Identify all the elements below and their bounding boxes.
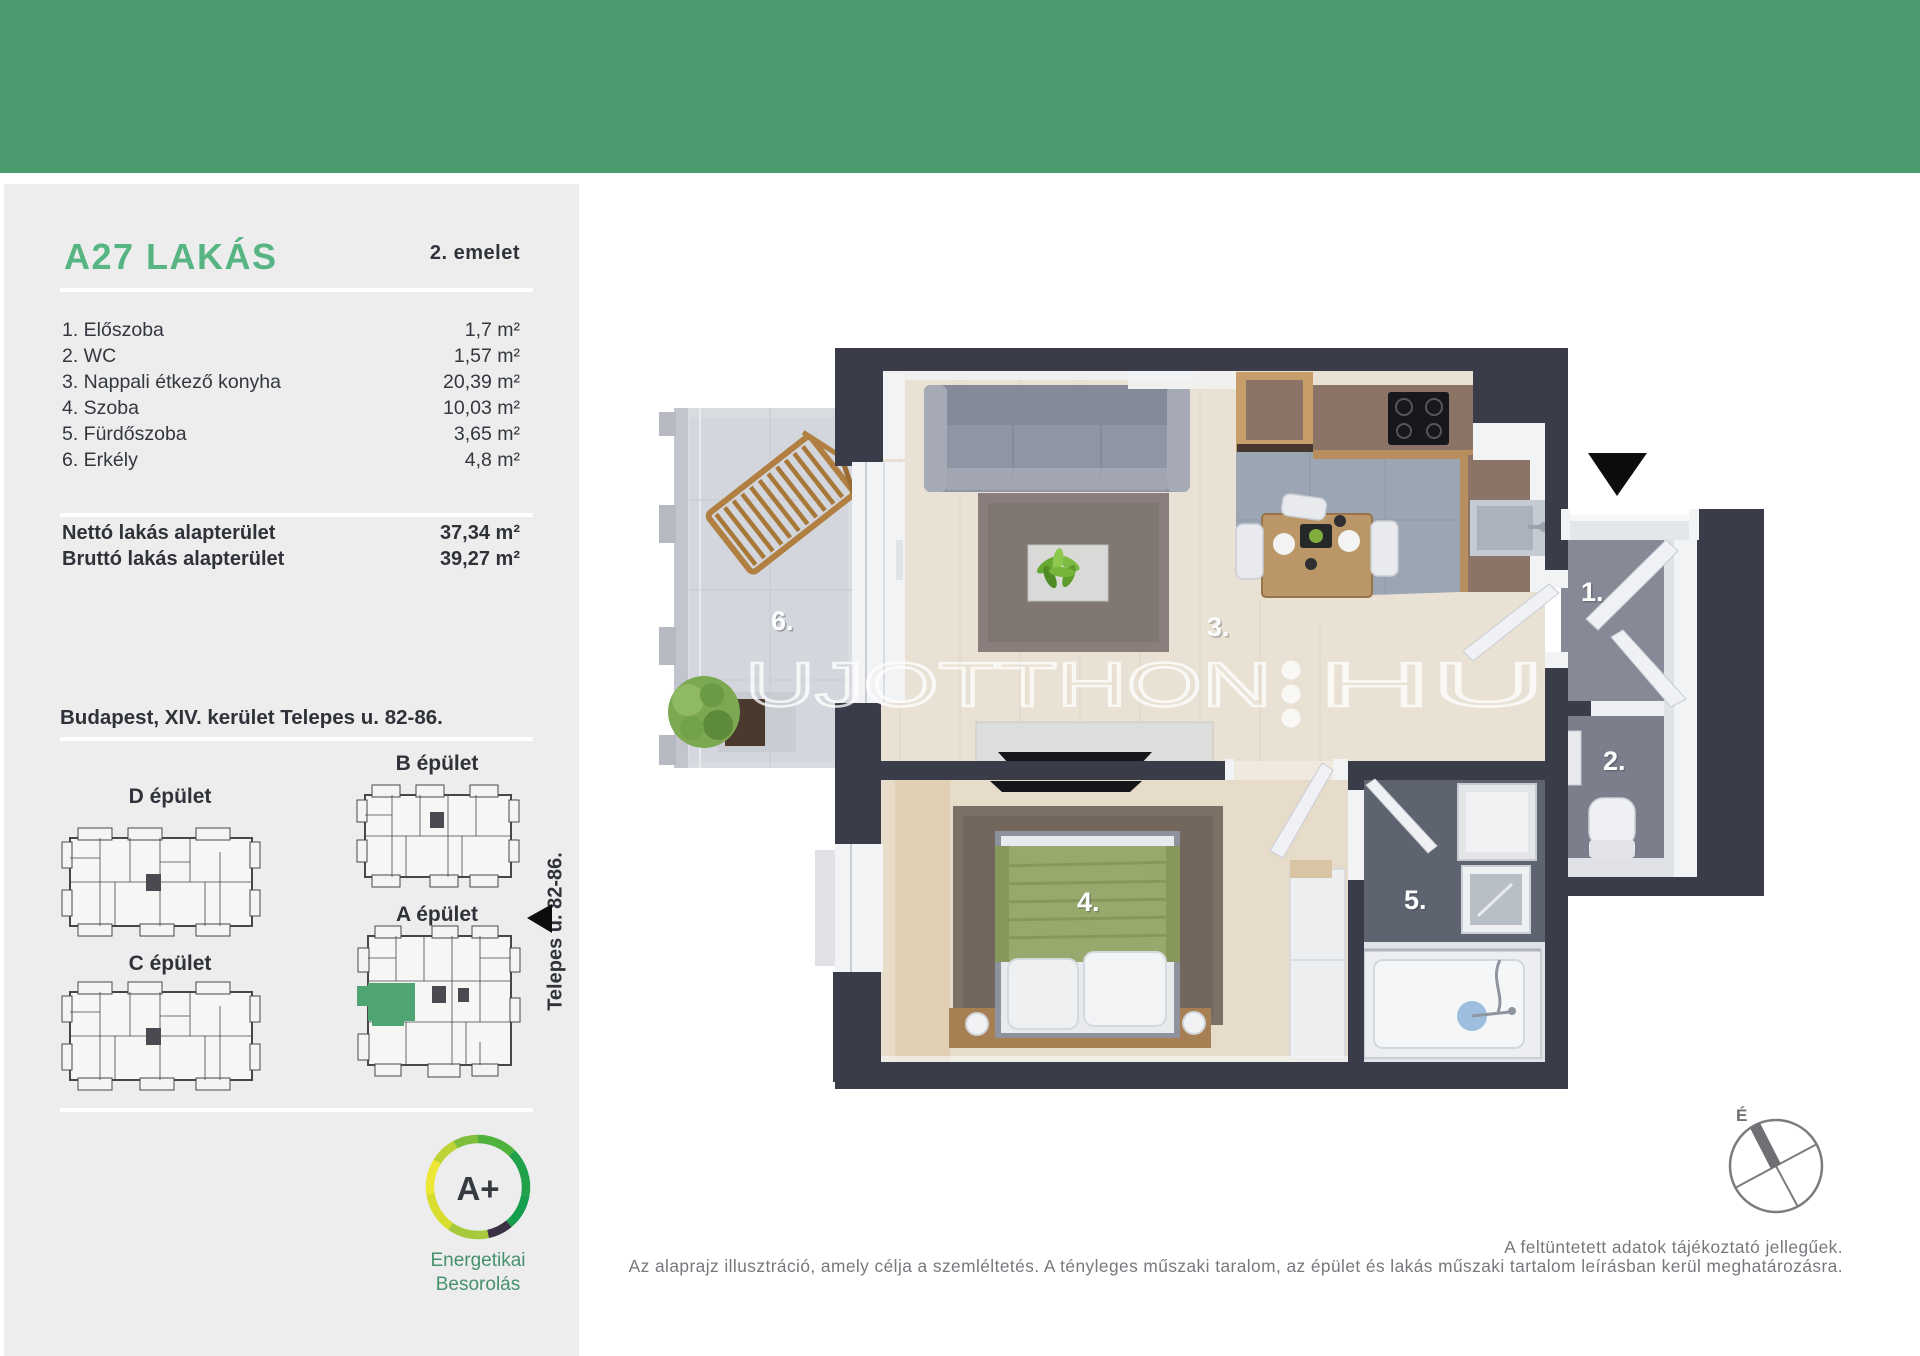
svg-text:A+: A+ <box>456 1170 499 1207</box>
svg-text:5.: 5. <box>1404 885 1427 915</box>
svg-text:3.: 3. <box>1207 612 1230 642</box>
svg-text:1.: 1. <box>1581 577 1604 607</box>
svg-text:UJOTTHON: UJOTTHON <box>745 651 1272 720</box>
svg-text:6.: 6. <box>771 606 794 636</box>
svg-text:2.: 2. <box>1603 746 1626 776</box>
svg-text:É: É <box>1736 1106 1747 1125</box>
svg-text:HU: HU <box>1318 651 1545 720</box>
svg-text:4.: 4. <box>1077 887 1100 917</box>
